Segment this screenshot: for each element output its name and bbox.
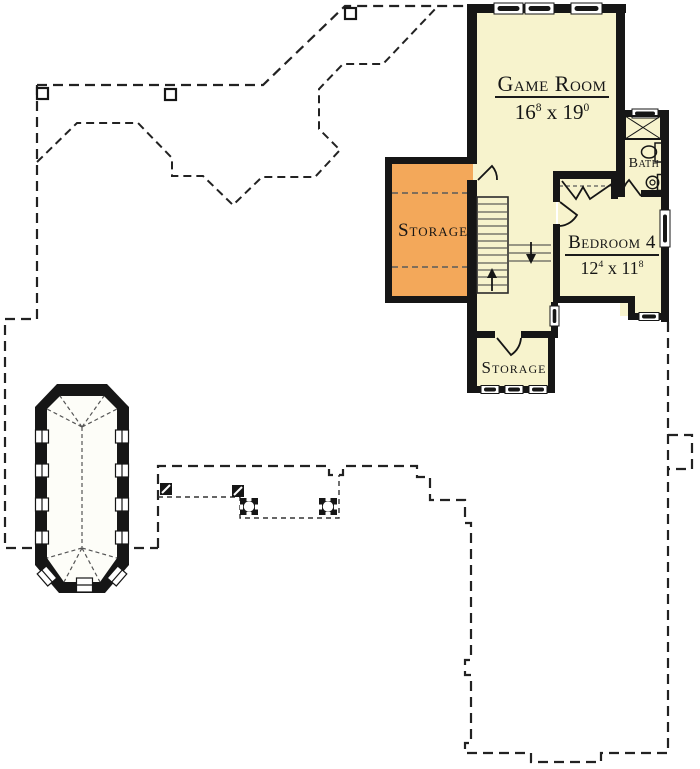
- outline-top: [37, 6, 467, 85]
- game-room-label: Game Room 168 x 190: [477, 72, 627, 123]
- floor-plan-canvas: Game Room 168 x 190 Bedroom 4 124 x 118 …: [0, 0, 700, 769]
- post-square: [165, 89, 176, 100]
- wall-segment: [467, 4, 477, 164]
- wall-segment: [553, 171, 625, 179]
- dim-depth-inches: 0: [584, 102, 590, 114]
- bath-label: Bath: [621, 157, 667, 172]
- room-name-text: Game Room: [495, 72, 610, 98]
- dim-width: 12: [580, 258, 598, 278]
- room-name-text: Storage: [398, 220, 468, 241]
- storage-lower-label: Storage: [472, 359, 556, 377]
- outline-inner-roof: [37, 6, 438, 205]
- storage-upper-label: Storage: [391, 221, 475, 241]
- wall-segment: [385, 157, 477, 164]
- room-name: Bedroom 4: [546, 233, 678, 256]
- bedroom4-label: Bedroom 4 124 x 118: [546, 233, 678, 278]
- room-name: Game Room: [477, 72, 627, 98]
- outline-right-lower: [158, 322, 668, 762]
- post-column-section: [240, 498, 337, 515]
- dim-depth: 11: [621, 258, 638, 278]
- wall-segment: [553, 296, 635, 303]
- room-name-text: Storage: [482, 358, 547, 377]
- tower-turret: [35, 384, 129, 593]
- chimney-outline: [668, 435, 692, 469]
- room-name-text: Bath: [629, 156, 660, 171]
- turret-interior: [47, 396, 117, 582]
- dim-separator: x: [542, 100, 563, 124]
- room-dimensions: 168 x 190: [477, 101, 627, 123]
- post-square: [345, 8, 356, 19]
- wall-segment: [467, 180, 477, 338]
- dim-separator: x: [603, 258, 621, 278]
- post-square: [37, 88, 48, 99]
- dim-width: 16: [515, 100, 536, 124]
- room-name-text: Bedroom 4: [565, 233, 659, 256]
- room-dimensions: 124 x 118: [546, 259, 678, 278]
- wall-segment: [385, 296, 477, 303]
- dim-depth: 19: [563, 100, 584, 124]
- dim-depth-inches: 8: [639, 259, 644, 270]
- wall-segment: [553, 171, 560, 202]
- post-slashed: [160, 483, 244, 497]
